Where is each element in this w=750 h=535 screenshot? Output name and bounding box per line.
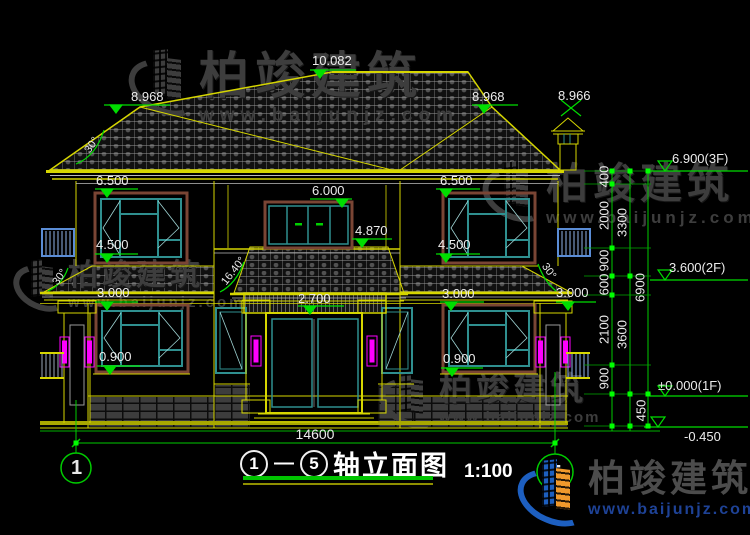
chain-600: 600: [598, 263, 611, 307]
dim-door2-top: 6.000: [312, 184, 345, 197]
title-scale: 1:100: [464, 461, 513, 483]
dim-hip-left: 8.968: [131, 90, 164, 103]
dim-w2-sill-right: 4.500: [438, 238, 471, 251]
level-3f: 6.900(3F): [672, 152, 728, 165]
chain-3600: 3600: [616, 313, 629, 357]
dim-w1-top-right: 3.000: [442, 287, 475, 300]
brand-logo-icon: [522, 460, 580, 524]
dim-ridge: 10.082: [312, 54, 352, 67]
level-ground: -0.450: [684, 430, 721, 443]
dim-w1-top-left: 3.000: [97, 286, 130, 299]
level-1f: ±0.000(1F): [658, 379, 722, 392]
elevation-drawing-canvas: 柏竣建筑 www.baijunjz.com 柏竣建筑 www.baijunjz.…: [0, 0, 750, 535]
title-underline: [243, 476, 433, 480]
title-axis-to: 5: [300, 450, 328, 478]
dim-chimney: 8.966: [558, 89, 591, 102]
balcony-2f-left: [42, 229, 74, 256]
chain-6900: 6900: [634, 266, 647, 310]
brand-url: www.baijunjz.com: [588, 501, 750, 519]
title-dash: —: [274, 452, 294, 475]
slider-door-2f: [265, 202, 352, 248]
dim-w1-sill-left: 0.900: [99, 350, 132, 363]
title-axis-from: 1: [240, 450, 268, 478]
chain-3300: 3300: [616, 201, 629, 245]
window-flank-left: [216, 308, 246, 373]
chain-900b: 900: [598, 357, 611, 401]
dim-door-top: 2.700: [298, 292, 331, 305]
dim-w2-top-left: 6.500: [96, 174, 129, 187]
chain-2100: 2100: [598, 308, 611, 352]
axis-bubble-left: 1: [71, 457, 82, 480]
window-2f-left: [95, 193, 187, 263]
dim-hip-right: 8.968: [472, 90, 505, 103]
dim-w1-sill-right: 0.900: [443, 352, 476, 365]
chain-450: 450: [635, 389, 648, 433]
title-underline-2: [243, 483, 433, 485]
chain-400: 400: [598, 155, 611, 199]
angle-arcs: [48, 130, 556, 292]
window-2f-right: [443, 193, 535, 263]
dim-porch-eave: 4.870: [355, 224, 388, 237]
dim-total-width: 14600: [285, 427, 345, 441]
wall-lamps: [60, 336, 570, 367]
brand-name: 柏竣建筑: [588, 460, 750, 499]
chain-2000: 2000: [598, 194, 611, 238]
brand-logo-corner: 柏竣建筑 www.baijunjz.com: [522, 460, 750, 524]
window-flank-right: [382, 308, 412, 373]
dim-w2-sill-left: 4.500: [96, 238, 129, 251]
entrance-door: [244, 293, 386, 413]
balcony-2f-right: [558, 229, 590, 256]
dim-w1-top-far-right: 3.000: [556, 286, 589, 299]
level-2f: 3.600(2F): [669, 261, 725, 274]
dim-w2-top-right: 6.500: [440, 174, 473, 187]
chimney: [551, 118, 585, 170]
